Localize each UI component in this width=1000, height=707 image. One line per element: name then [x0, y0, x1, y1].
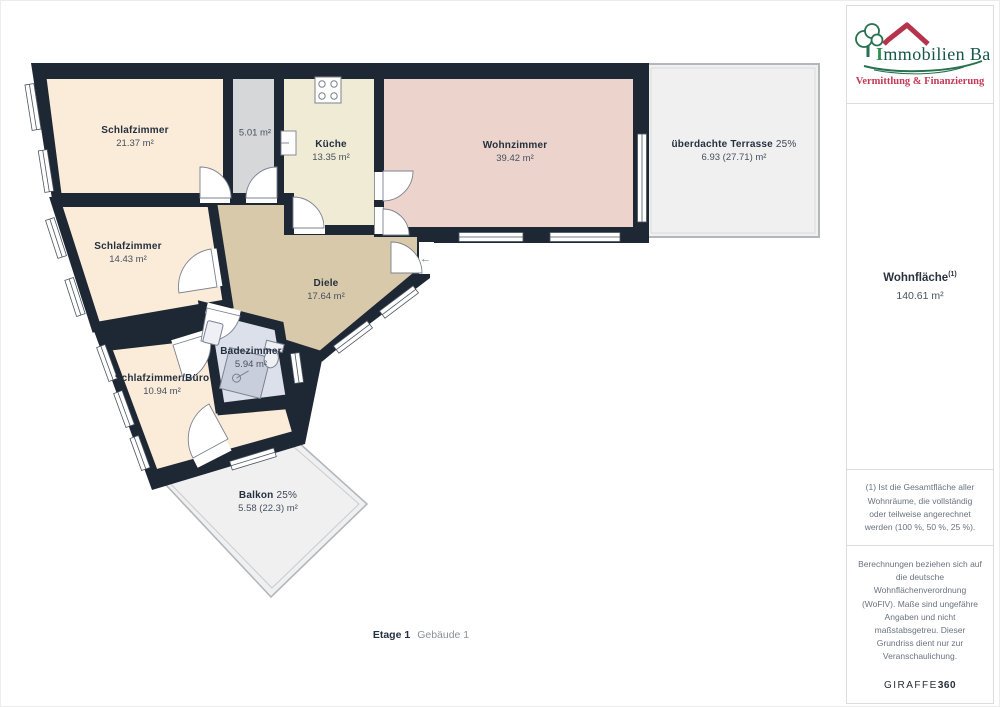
entrance-arrow-icon: ←	[420, 253, 431, 265]
disclaimer-section: Berechnungen beziehen sich auf die deuts…	[847, 545, 993, 703]
info-sidebar: Immobilien Bart Vermittlung & Finanzieru…	[846, 5, 994, 704]
living-area-section: Wohnfläche(1) 140.61 m²	[847, 104, 993, 469]
immobilien-bart-logo-icon: Immobilien Bart Vermittlung & Finanzieru…	[850, 16, 990, 94]
svg-text:Immobilien Bart: Immobilien Bart	[876, 44, 990, 64]
disclaimer-text: Berechnungen beziehen sich auf die deuts…	[858, 558, 982, 663]
company-logo: Immobilien Bart Vermittlung & Finanzieru…	[847, 6, 993, 104]
kitchen-sink-icon	[281, 131, 296, 155]
floorplan-drawing: ←	[1, 1, 846, 707]
terrace-area	[647, 64, 819, 237]
floorplan-page: ←	[0, 0, 1000, 707]
svg-text:Vermittlung & Finanzierung: Vermittlung & Finanzierung	[856, 76, 985, 87]
living-area-value: 140.61 m²	[883, 290, 957, 302]
room-wohnzimmer	[379, 74, 638, 232]
giraffe360-logo: GIRAFFE360	[858, 678, 982, 694]
stove-icon	[315, 77, 341, 103]
footnote-1: (1) Ist die Gesamtfläche aller Wohnräume…	[847, 469, 993, 545]
living-area-label: Wohnfläche(1)	[883, 271, 957, 284]
roof-icon	[884, 25, 928, 44]
